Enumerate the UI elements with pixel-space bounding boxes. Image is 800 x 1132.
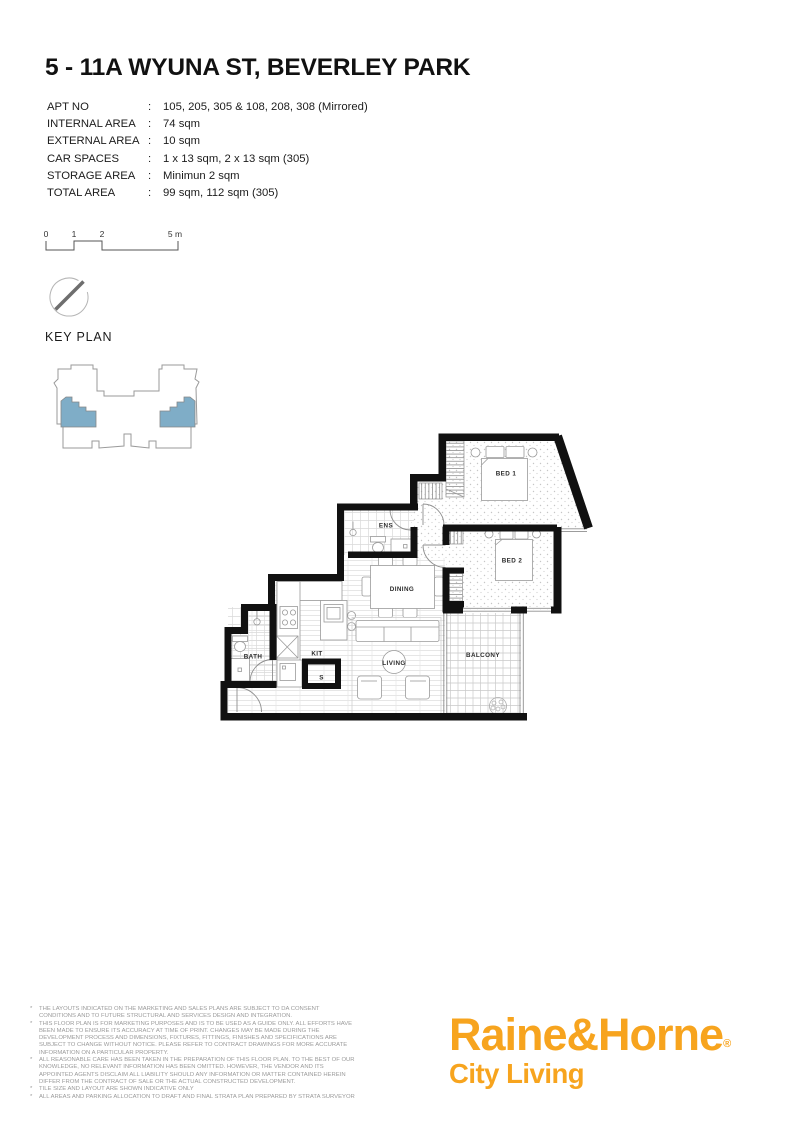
disclaimer: * THE LAYOUTS INDICATED ON THE MARKETING… — [30, 1006, 357, 1101]
floor-plan: BED 1 BED 2 ENS DINING KIT BATH LIVING B… — [221, 434, 589, 721]
raine-horne-logo: Raine&Horne® City Living — [449, 1012, 730, 1088]
room-label-bed2: BED 2 — [502, 558, 523, 565]
disclaimer-text: ALL AREAS AND PARKING ALLOCATION TO DRAF… — [39, 1094, 355, 1101]
room-label-bath: BATH — [244, 654, 263, 661]
disclaimer-item: * ALL REASONABLE CARE HAS BEEN TAKEN IN … — [30, 1057, 357, 1086]
disclaimer-text: THIS FLOOR PLAN IS FOR MARKETING PURPOSE… — [39, 1021, 357, 1057]
logo-brand: Raine&Horne® — [449, 1012, 730, 1057]
disclaimer-text: THE LAYOUTS INDICATED ON THE MARKETING A… — [39, 1006, 357, 1021]
room-label-dining: DINING — [390, 586, 414, 593]
scale-tick: 2 — [100, 229, 105, 239]
disclaimer-text: TILE SIZE AND LAYOUT ARE SHOWN INDICATIV… — [39, 1086, 194, 1093]
disclaimer-item: * TILE SIZE AND LAYOUT ARE SHOWN INDICAT… — [30, 1086, 357, 1093]
key-plan-diagram — [54, 365, 199, 448]
north-needle — [56, 282, 84, 310]
scale-tick: 1 — [72, 229, 77, 239]
disclaimer-item: * THIS FLOOR PLAN IS FOR MARKETING PURPO… — [30, 1021, 357, 1057]
logo-tagline: City Living — [449, 1060, 730, 1088]
bullet: * — [30, 1057, 39, 1086]
room-label-kit: KIT — [311, 651, 322, 658]
bullet: * — [30, 1086, 39, 1093]
scale-bar-line — [46, 241, 178, 250]
floorplan-sheet: 5 - 11A WYUNA ST, BEVERLEY PARK APT NO :… — [0, 0, 800, 1132]
registered-mark: ® — [723, 1038, 730, 1050]
disclaimer-text: ALL REASONABLE CARE HAS BEEN TAKEN IN TH… — [39, 1057, 357, 1086]
bullet: * — [30, 1021, 39, 1057]
scale-tick: 5 m — [168, 229, 182, 239]
room-label-bed1: BED 1 — [496, 471, 517, 478]
scale-bar: 0 1 2 5 m — [44, 229, 182, 250]
north-arrow-icon — [50, 278, 88, 316]
room-label-living: LIVING — [382, 660, 405, 667]
room-label-storage: S — [319, 675, 324, 682]
room-label-ens: ENS — [379, 523, 393, 530]
scale-tick: 0 — [44, 229, 49, 239]
room-label-balcony: BALCONY — [466, 652, 500, 659]
logo-brand-text: Raine&Horne — [449, 1009, 723, 1060]
disclaimer-item: * ALL AREAS AND PARKING ALLOCATION TO DR… — [30, 1094, 357, 1101]
drawing-layer: 0 1 2 5 m — [0, 0, 800, 1132]
bullet: * — [30, 1006, 39, 1021]
bullet: * — [30, 1094, 39, 1101]
disclaimer-item: * THE LAYOUTS INDICATED ON THE MARKETING… — [30, 1006, 357, 1021]
